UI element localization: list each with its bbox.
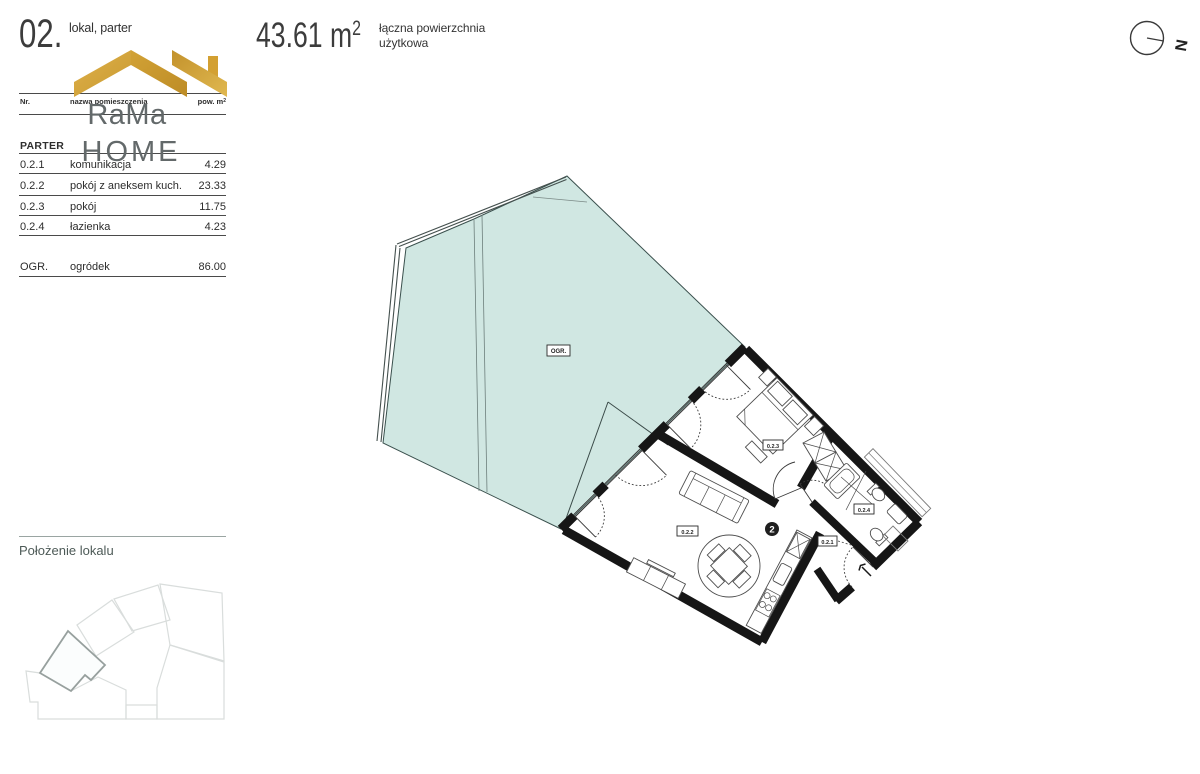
svg-text:0.2.1: 0.2.1	[821, 540, 833, 546]
svg-text:0.2.2: 0.2.2	[681, 530, 693, 536]
svg-text:RaMa: RaMa	[87, 99, 167, 131]
svg-text:N: N	[1171, 38, 1190, 52]
svg-text:2: 2	[769, 525, 774, 536]
svg-text:HOME: HOME	[82, 136, 181, 168]
svg-text:0.2.3: 0.2.3	[767, 444, 779, 450]
svg-text:OGR.: OGR.	[551, 349, 567, 355]
svg-text:0.2.4: 0.2.4	[858, 508, 871, 514]
